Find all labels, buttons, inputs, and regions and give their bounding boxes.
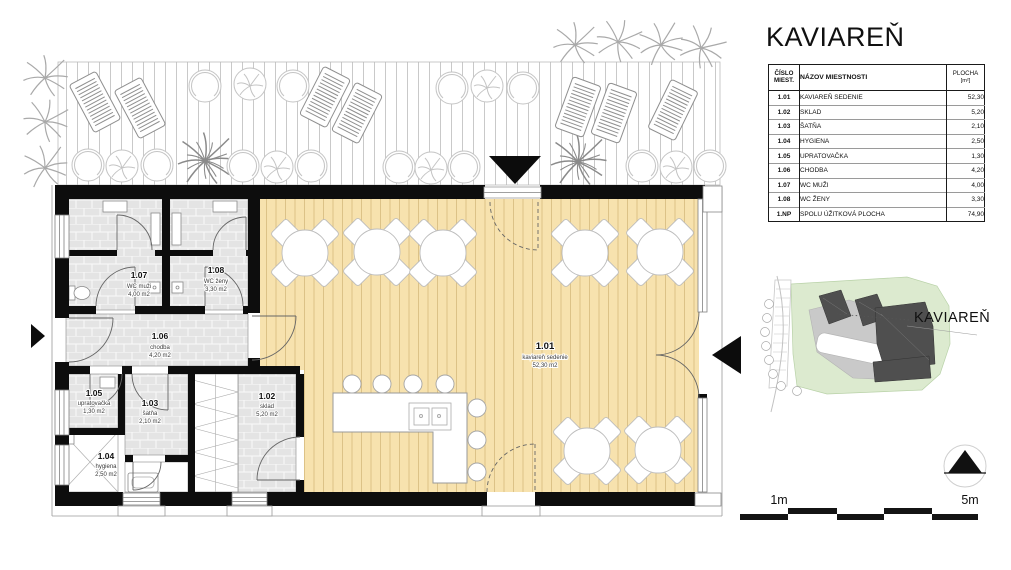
terrace-chair-icon xyxy=(626,150,658,182)
potted-plant-icon xyxy=(234,68,266,100)
room-number: 1.03 xyxy=(142,398,159,408)
table-total-row: 1.NP SPOLU ÚŽITKOVÁ PLOCHA 74,90 xyxy=(769,207,985,222)
utility-sink-icon xyxy=(100,377,115,388)
potted-plant-icon xyxy=(660,151,692,183)
table-row: 1.01 KAVIAREŇ SEDENIE 52,30 xyxy=(769,91,985,106)
entrance-door-sill xyxy=(484,187,541,198)
room-name: WC muži xyxy=(127,284,151,290)
room-area: 5,20 m2 xyxy=(256,412,278,418)
cell-name: SKLAD xyxy=(800,105,947,120)
room-name: kaviareň sedenie xyxy=(522,355,568,361)
glazed-wall xyxy=(698,199,707,492)
north-arrow-icon xyxy=(941,442,989,490)
bar-stool-icon xyxy=(468,399,486,417)
room-area: 1,30 m2 xyxy=(83,409,105,415)
potted-plant-icon xyxy=(471,70,503,102)
site-road xyxy=(769,276,791,412)
room-name: chodba xyxy=(150,345,170,351)
header-room-number: ČÍSLO MIEST. xyxy=(769,65,800,91)
table-row: 1.05 UPRATOVAČKA 1,30 xyxy=(769,149,985,164)
window xyxy=(232,493,267,505)
room-number: 1.02 xyxy=(259,391,276,401)
palm-tree-icon xyxy=(553,22,597,63)
room-area: 52,30 m2 xyxy=(532,363,558,369)
terrace-chair-icon xyxy=(72,149,104,181)
table-row: 1.08 WC ŽENY 3,30 xyxy=(769,193,985,208)
table-row: 1.02 SKLAD 5,20 xyxy=(769,105,985,120)
scale-label-1m: 1m xyxy=(770,493,787,507)
cell-name: UPRATOVAČKA xyxy=(800,149,947,164)
table-header-row: ČÍSLO MIEST. NÁZOV MIESTNOSTI PLOCHA [m²… xyxy=(769,65,985,91)
corner-post xyxy=(695,493,721,506)
cell-name: WC MUŽI xyxy=(800,178,947,193)
terrace-chair-icon xyxy=(295,150,327,182)
cell-name: ŠATŇA xyxy=(800,120,947,135)
window xyxy=(55,445,69,485)
bathtub-icon xyxy=(128,473,158,492)
window-sill xyxy=(118,506,165,516)
cell-number: 1.05 xyxy=(769,149,800,164)
terrace-chair-icon xyxy=(141,149,173,181)
room-name: upratovačka xyxy=(78,401,111,407)
cell-area: 4,20 xyxy=(947,163,985,178)
sink-counter xyxy=(151,213,160,245)
room-label-1-04: 1.04 hygiena 2,50 m2 xyxy=(95,451,117,478)
cell-number: 1.04 xyxy=(769,134,800,149)
potted-plant-icon xyxy=(415,152,447,184)
room-area: 3,30 m2 xyxy=(205,287,227,293)
terrace-chair-icon xyxy=(436,72,468,104)
cell-number: 1.NP xyxy=(769,207,800,222)
table-row: 1.07 WC MUŽI 4,00 xyxy=(769,178,985,193)
bar-stool-icon xyxy=(404,375,422,393)
header-room-name: NÁZOV MIESTNOSTI xyxy=(800,65,947,91)
cell-name: KAVIAREŇ SEDENIE xyxy=(800,91,947,106)
cell-number: 1.02 xyxy=(769,105,800,120)
room-area: 4,20 m2 xyxy=(149,353,171,359)
entrance-arrow-left-icon xyxy=(31,324,45,348)
cell-area: 3,30 xyxy=(947,193,985,208)
room-name: hygiena xyxy=(95,464,117,470)
room-schedule-table: ČÍSLO MIEST. NÁZOV MIESTNOSTI PLOCHA [m²… xyxy=(768,64,985,222)
toilet-icon xyxy=(69,286,90,300)
bar-stool-icon xyxy=(343,375,361,393)
cell-name: HYGIENA xyxy=(800,134,947,149)
window xyxy=(55,390,69,435)
potted-plant-icon xyxy=(261,151,293,183)
terrace-chair-icon xyxy=(227,150,259,182)
room-name: šatňa xyxy=(143,411,158,417)
room-number: 1.06 xyxy=(152,331,169,341)
cell-area: 4,00 xyxy=(947,178,985,193)
palm-tree-icon xyxy=(592,13,648,67)
corner-post xyxy=(703,186,722,212)
table-row: 1.06 CHODBA 4,20 xyxy=(769,163,985,178)
room-number: 1.05 xyxy=(86,388,103,398)
bar-stool-icon xyxy=(468,463,486,481)
cell-number: 1.08 xyxy=(769,193,800,208)
drawing-title: KAVIAREŇ xyxy=(766,22,905,53)
terrace-chair-icon xyxy=(277,70,309,102)
cell-area: 2,50 xyxy=(947,134,985,149)
door-sill xyxy=(482,506,540,516)
window xyxy=(123,493,160,505)
room-area: 2,50 m2 xyxy=(95,472,117,478)
room-label-1-06: 1.06 chodba 4,20 m2 xyxy=(149,331,171,359)
table-row: 1.03 ŠATŇA 2,10 xyxy=(769,120,985,135)
cell-number: 1.06 xyxy=(769,163,800,178)
table-row: 1.04 HYGIENA 2,50 xyxy=(769,134,985,149)
room-name: WC ženy xyxy=(204,279,228,285)
potted-plant-icon xyxy=(106,150,138,182)
terrace-chair-icon xyxy=(383,151,415,183)
cistern xyxy=(103,201,127,212)
terrace-deck xyxy=(19,13,732,189)
sink-counter xyxy=(172,213,181,245)
window xyxy=(55,215,69,258)
cell-area: 74,90 xyxy=(947,207,985,222)
palm-tree-icon xyxy=(634,17,687,68)
scale-bar-segments xyxy=(740,508,978,520)
cell-area: 52,30 xyxy=(947,91,985,106)
terrace-chair-icon xyxy=(448,151,480,183)
room-name: sklad xyxy=(260,404,274,410)
cell-number: 1.07 xyxy=(769,178,800,193)
room-area: 2,10 m2 xyxy=(139,419,161,425)
cell-name: WC ŽENY xyxy=(800,193,947,208)
cell-area: 2,10 xyxy=(947,120,985,135)
bar-stool-icon xyxy=(373,375,391,393)
storage-shelving xyxy=(193,374,238,492)
cell-area: 1,30 xyxy=(947,149,985,164)
terrace-chair-icon xyxy=(694,150,726,182)
window-sill xyxy=(227,506,272,516)
room-area: 4,00 m2 xyxy=(128,292,150,298)
cell-number: 1.01 xyxy=(769,91,800,106)
header-room-area: PLOCHA [m²] xyxy=(947,65,985,91)
cistern xyxy=(213,201,237,212)
site-plan: KAVIAREŇ xyxy=(757,274,991,414)
room-number: 1.08 xyxy=(208,265,225,275)
floor-plan-drawing: 1.01 kaviareň sedenie 52,30 m2 1.02 skla… xyxy=(0,0,745,570)
entrance-arrow-right-icon xyxy=(712,336,741,374)
room-number: 1.01 xyxy=(536,341,555,352)
cell-number: 1.03 xyxy=(769,120,800,135)
cell-area: 5,20 xyxy=(947,105,985,120)
scale-bar: 1m 5m xyxy=(733,492,985,526)
room-number: 1.04 xyxy=(98,451,115,461)
room-number: 1.07 xyxy=(131,270,148,280)
architectural-drawing-sheet: 1.01 kaviareň sedenie 52,30 m2 1.02 skla… xyxy=(0,0,1011,570)
site-plan-label: KAVIAREŇ xyxy=(914,309,990,326)
bar-stool-icon xyxy=(468,431,486,449)
scale-label-5m: 5m xyxy=(961,493,978,507)
cell-name: SPOLU ÚŽITKOVÁ PLOCHA xyxy=(800,207,947,222)
terrace-chair-icon xyxy=(507,72,539,104)
bar-stool-icon xyxy=(436,375,454,393)
cell-name: CHODBA xyxy=(800,163,947,178)
terrace-chair-icon xyxy=(189,70,221,102)
